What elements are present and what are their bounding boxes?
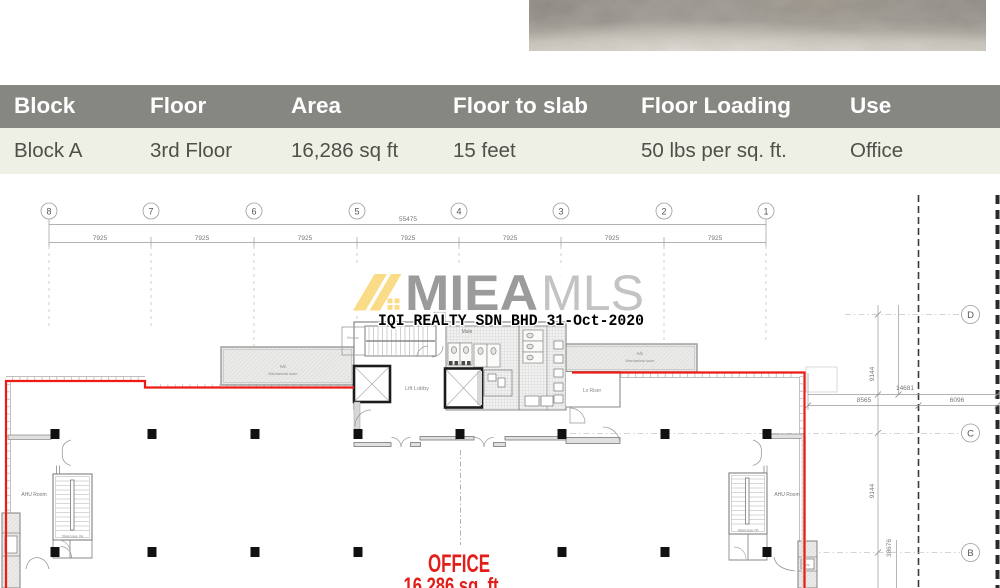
svg-text:IQI REALTY SDN BHD 31-Oct-2020: IQI REALTY SDN BHD 31-Oct-2020 [378, 312, 644, 330]
svg-text:8565: 8565 [857, 397, 872, 404]
svg-text:7925: 7925 [93, 235, 108, 242]
svg-text:7925: 7925 [298, 235, 313, 242]
svg-text:3: 3 [558, 207, 563, 217]
svg-text:Staircase 04: Staircase 04 [62, 535, 83, 539]
svg-text:D: D [967, 310, 974, 321]
svg-text:1: 1 [763, 207, 768, 217]
svg-text:Mechanical room: Mechanical room [269, 372, 298, 376]
svg-text:9144: 9144 [869, 366, 876, 381]
svg-text:14681: 14681 [896, 385, 914, 392]
svg-text:7925: 7925 [195, 235, 210, 242]
svg-text:7925: 7925 [605, 235, 620, 242]
svg-text:6: 6 [251, 207, 256, 217]
svg-text:16,286 sq. ft: 16,286 sq. ft [404, 573, 500, 588]
svg-text:AHU Room: AHU Room [774, 492, 799, 498]
svg-text:6096: 6096 [950, 397, 965, 404]
svg-text:7925: 7925 [708, 235, 723, 242]
svg-text:4: 4 [456, 207, 461, 217]
svg-text:Mechanical room: Mechanical room [626, 359, 655, 363]
svg-text:55475: 55475 [399, 216, 417, 223]
svg-text:Lv Riser: Lv Riser [583, 388, 602, 394]
svg-text:A/c: A/c [637, 351, 644, 356]
svg-text:AHU Room: AHU Room [21, 492, 46, 498]
svg-text:7925: 7925 [401, 235, 416, 242]
svg-text:7: 7 [148, 207, 153, 217]
svg-text:9144: 9144 [869, 483, 876, 498]
svg-text:Staircase 05: Staircase 05 [737, 529, 758, 533]
svg-text:7925: 7925 [503, 235, 518, 242]
svg-text:A/c: A/c [280, 364, 287, 369]
svg-text:Recess: Recess [347, 336, 359, 340]
svg-text:38676: 38676 [886, 539, 893, 557]
svg-text:8: 8 [46, 207, 51, 217]
svg-text:5: 5 [354, 207, 359, 217]
svg-text:B: B [967, 548, 973, 559]
svg-text:2: 2 [661, 207, 666, 217]
svg-text:C: C [967, 429, 974, 440]
svg-text:Lift Lobby: Lift Lobby [405, 386, 429, 392]
